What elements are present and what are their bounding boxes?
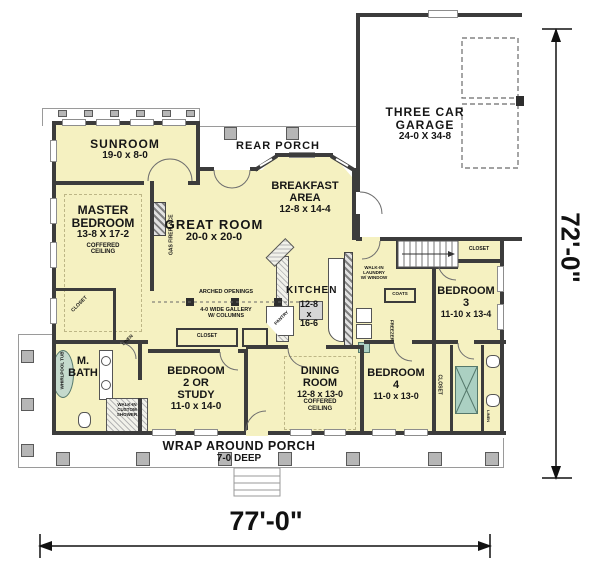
- arched-openings-label: ARCHED OPENINGS: [180, 290, 272, 296]
- gallery-column: [231, 298, 239, 306]
- wall: [250, 167, 258, 171]
- bed2-closet-label: CLOSET: [178, 334, 236, 339]
- dining-room-label: DINING ROOM 12-8 x 13-0 COFFERED CEILING: [280, 366, 360, 412]
- window: [162, 119, 186, 126]
- bed4-closet-label: CLOSET: [436, 366, 441, 404]
- window-garage: [428, 10, 458, 18]
- porch-column: [56, 452, 70, 466]
- wall: [148, 349, 220, 353]
- coats-label: COATS: [384, 292, 416, 297]
- arrowhead: [551, 28, 561, 42]
- sunroom-label: SUNROOM 19-0 x 8-0: [64, 138, 186, 162]
- window: [324, 429, 346, 436]
- mbath-toilet: [78, 412, 91, 428]
- hallbath-tub: [455, 366, 478, 414]
- hallbath-toilet: [486, 355, 500, 368]
- porch-tick: [110, 110, 119, 117]
- wall: [52, 181, 144, 185]
- gallery-column: [186, 298, 194, 306]
- window: [62, 119, 86, 126]
- porch-column: [21, 398, 34, 411]
- wall: [452, 241, 455, 263]
- shower-label: WALK-IN CUSTOM SHOWER: [108, 403, 146, 418]
- porch-tick: [136, 110, 145, 117]
- dimension-bottom-line: [40, 534, 490, 558]
- bedroom3-label: BEDROOM 3 11-10 x 13-4: [428, 286, 504, 319]
- wall: [52, 340, 148, 344]
- wall: [450, 345, 453, 435]
- arrowhead: [38, 541, 52, 551]
- wall: [326, 345, 364, 349]
- wall-master-closet: [113, 288, 116, 342]
- window: [130, 119, 154, 126]
- wall-stair: [398, 266, 458, 269]
- window: [290, 429, 312, 436]
- wall: [246, 345, 288, 349]
- porch-tick: [186, 110, 195, 117]
- fireplace-label: GAS FIREPLACE: [169, 207, 174, 263]
- porch-tick: [84, 110, 93, 117]
- wall-south: [52, 431, 506, 435]
- porch-post: [286, 127, 299, 140]
- breakfast-label: BREAKFAST AREA 12-8 x 14-4: [254, 181, 356, 216]
- wrap-porch-label: WRAP AROUND PORCH 7-0 DEEP: [136, 440, 342, 464]
- window: [404, 429, 428, 436]
- wall-stair: [396, 241, 399, 269]
- wall: [481, 345, 484, 435]
- laundry-label: WALK-IN LAUNDRY W/ WINDOW: [352, 266, 396, 281]
- tub-label: WHIRLPOOL TUB: [61, 344, 66, 396]
- great-room-label: GREAT ROOM 20-0 x 20-0: [158, 218, 270, 244]
- master-bath-label: M. BATH: [68, 356, 98, 380]
- wall: [138, 344, 142, 380]
- freezer-label: FREEZER: [389, 311, 394, 349]
- porch-steps: [234, 468, 280, 496]
- dimension-bottom: 77'-0": [196, 506, 336, 537]
- window: [152, 429, 176, 436]
- porch-column: [346, 452, 360, 466]
- floor-plan: SUNROOM 19-0 x 8-0 REAR PORCH THREE CAR …: [0, 0, 600, 570]
- garage-label: THREE CAR GARAGE 24-0 X 34-8: [364, 106, 486, 143]
- porch-post: [224, 127, 237, 140]
- wall-garage: [356, 237, 522, 241]
- porch-tick: [58, 110, 67, 117]
- rear-porch-label: REAR PORCH: [214, 141, 342, 153]
- wall: [456, 259, 504, 263]
- wall-west: [52, 121, 56, 435]
- window-bay: [289, 152, 315, 158]
- gallery-column: [274, 298, 282, 306]
- wall: [196, 121, 200, 183]
- window: [50, 242, 57, 268]
- window: [50, 198, 57, 224]
- porch-column: [21, 350, 34, 363]
- porch-tick: [162, 110, 171, 117]
- wall: [244, 349, 248, 435]
- hallbath-linen-label: LINEN: [486, 402, 490, 430]
- arrowhead: [551, 466, 561, 480]
- gallery-label: 4-0 WIDE GALLERY W/ COLUMNS: [180, 308, 272, 320]
- washer: [356, 308, 372, 323]
- bed3-closet-label: CLOSET: [456, 247, 502, 252]
- arrowhead: [478, 541, 492, 551]
- door-gap: [356, 192, 360, 214]
- master-bedroom-label: MASTER BEDROOM 13-8 X 17-2 COFFERED CEIL…: [58, 204, 148, 256]
- wall-master-closet: [52, 288, 116, 291]
- window: [372, 429, 396, 436]
- porch-column: [485, 452, 499, 466]
- dryer: [356, 324, 372, 339]
- bedroom2-label: BEDROOM 2 OR STUDY 11-0 x 14-0: [150, 366, 242, 412]
- porch-column: [21, 444, 34, 457]
- wall: [150, 181, 154, 291]
- mbath-sink: [101, 356, 111, 366]
- window: [96, 119, 120, 126]
- mbath-sink: [101, 380, 111, 390]
- dimension-right: 72'-0": [555, 206, 586, 290]
- window: [50, 298, 57, 324]
- window: [50, 140, 57, 162]
- door-gap: [246, 430, 268, 436]
- porch-column: [428, 452, 442, 466]
- window: [194, 429, 218, 436]
- bedroom4-label: BEDROOM 4 11-0 x 13-0: [362, 368, 430, 401]
- door-gap: [362, 237, 380, 241]
